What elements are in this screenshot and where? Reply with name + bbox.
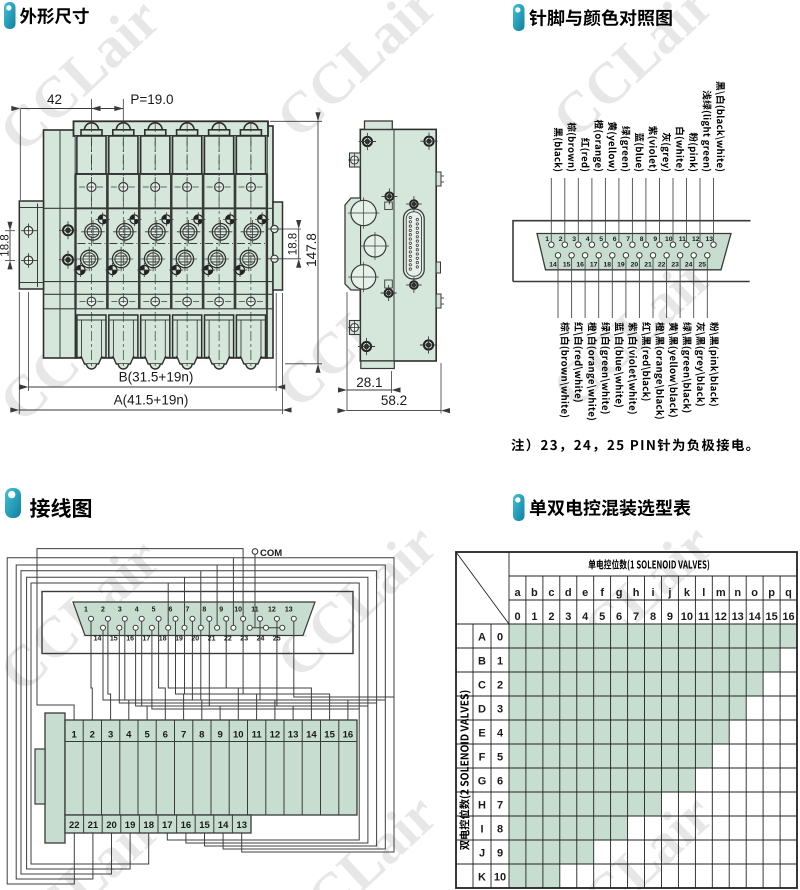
svg-text:e: e (582, 587, 588, 599)
svg-text:I: I (480, 824, 483, 836)
svg-text:9: 9 (219, 607, 223, 614)
svg-text:19: 19 (175, 636, 183, 643)
svg-text:14: 14 (306, 730, 317, 741)
svg-text:10: 10 (234, 607, 242, 614)
svg-text:A: A (478, 632, 486, 644)
svg-text:B: B (478, 656, 486, 668)
svg-text:a: a (514, 587, 521, 599)
svg-text:12: 12 (692, 236, 700, 243)
svg-text:24: 24 (685, 262, 693, 269)
svg-text:q: q (785, 587, 792, 599)
svg-text:8: 8 (199, 730, 204, 741)
svg-text:3: 3 (118, 607, 122, 614)
svg-text:18: 18 (159, 636, 167, 643)
svg-text:7: 7 (181, 730, 186, 741)
svg-text:147.8: 147.8 (304, 233, 319, 267)
svg-text:16: 16 (782, 611, 794, 623)
svg-text:13: 13 (236, 820, 247, 831)
svg-text:4: 4 (135, 607, 139, 614)
svg-text:3: 3 (108, 730, 113, 741)
svg-text:10: 10 (494, 872, 506, 884)
svg-text:17: 17 (590, 262, 598, 269)
svg-text:g: g (616, 587, 623, 599)
svg-text:16: 16 (576, 262, 584, 269)
svg-text:1: 1 (71, 730, 77, 741)
svg-text:11: 11 (679, 236, 686, 243)
svg-text:A(41.5+19n): A(41.5+19n) (114, 393, 189, 408)
svg-text:0: 0 (514, 611, 520, 623)
svg-text:9: 9 (497, 848, 503, 860)
svg-text:16: 16 (126, 636, 134, 643)
svg-text:2: 2 (559, 236, 563, 243)
svg-text:12: 12 (270, 730, 281, 741)
svg-text:21: 21 (644, 262, 652, 269)
svg-text:17: 17 (143, 636, 151, 643)
svg-text:j: j (667, 587, 671, 599)
svg-text:COM: COM (260, 548, 282, 559)
svg-text:5: 5 (599, 236, 603, 243)
svg-text:f: f (600, 587, 604, 599)
svg-text:5: 5 (599, 611, 605, 623)
svg-text:13: 13 (285, 607, 293, 614)
svg-text:8: 8 (202, 607, 206, 614)
svg-text:h: h (633, 587, 640, 599)
svg-text:19: 19 (617, 262, 625, 269)
svg-text:13: 13 (288, 730, 299, 741)
svg-text:14: 14 (218, 820, 229, 831)
svg-text:d: d (565, 587, 572, 599)
svg-text:2: 2 (90, 730, 95, 741)
svg-text:4: 4 (497, 728, 504, 740)
svg-text:7: 7 (633, 611, 639, 623)
svg-text:2: 2 (101, 607, 105, 614)
svg-text:8: 8 (640, 236, 644, 243)
svg-text:C: C (478, 680, 486, 692)
svg-text:23: 23 (240, 636, 248, 643)
svg-text:18: 18 (143, 820, 154, 831)
svg-text:6: 6 (613, 236, 617, 243)
svg-text:11: 11 (251, 607, 259, 614)
svg-text:7: 7 (497, 800, 503, 812)
svg-text:9: 9 (667, 611, 673, 623)
svg-text:16: 16 (181, 820, 192, 831)
svg-text:8: 8 (497, 824, 503, 836)
svg-text:11: 11 (252, 730, 263, 741)
svg-text:2: 2 (548, 611, 554, 623)
svg-text:0: 0 (497, 632, 503, 644)
svg-text:9: 9 (217, 730, 222, 741)
svg-text:16: 16 (343, 730, 354, 741)
svg-text:42: 42 (47, 92, 62, 107)
svg-text:m: m (716, 587, 726, 599)
svg-text:5: 5 (497, 752, 503, 764)
svg-text:P=19.0: P=19.0 (130, 92, 173, 107)
svg-text:6: 6 (497, 776, 503, 788)
svg-text:4: 4 (582, 611, 589, 623)
svg-text:21: 21 (88, 820, 99, 831)
svg-text:p: p (768, 587, 775, 599)
svg-text:5: 5 (152, 607, 156, 614)
svg-text:12: 12 (715, 611, 727, 623)
svg-text:22: 22 (658, 262, 666, 269)
svg-text:H: H (478, 800, 486, 812)
svg-text:F: F (479, 752, 486, 764)
svg-text:6: 6 (616, 611, 622, 623)
svg-text:J: J (479, 848, 485, 860)
svg-text:15: 15 (110, 636, 118, 643)
svg-text:13: 13 (706, 236, 714, 243)
svg-text:8: 8 (650, 611, 656, 623)
svg-text:c: c (548, 587, 554, 599)
svg-text:1: 1 (531, 611, 537, 623)
svg-text:19: 19 (125, 820, 136, 831)
svg-text:k: k (684, 587, 691, 599)
svg-text:n: n (734, 587, 741, 599)
svg-text:5: 5 (144, 730, 150, 741)
svg-text:b: b (531, 587, 538, 599)
svg-text:18.8: 18.8 (288, 233, 300, 255)
svg-text:K: K (478, 872, 486, 884)
svg-text:i: i (651, 587, 654, 599)
svg-text:20: 20 (191, 636, 199, 643)
svg-text:14: 14 (94, 636, 102, 643)
svg-text:10: 10 (665, 236, 673, 243)
svg-text:15: 15 (563, 262, 571, 269)
svg-text:11: 11 (698, 611, 710, 623)
svg-text:1: 1 (497, 656, 503, 668)
svg-text:2: 2 (497, 680, 503, 692)
svg-text:20: 20 (106, 820, 117, 831)
svg-text:13: 13 (732, 611, 744, 623)
svg-text:4: 4 (126, 730, 132, 741)
svg-text:17: 17 (162, 820, 173, 831)
svg-text:15: 15 (199, 820, 210, 831)
svg-text:28.1: 28.1 (356, 375, 382, 390)
svg-text:18: 18 (604, 262, 612, 269)
svg-text:1: 1 (545, 236, 549, 243)
svg-text:10: 10 (681, 611, 693, 623)
svg-text:6: 6 (163, 730, 168, 741)
svg-text:G: G (478, 776, 487, 788)
svg-text:23: 23 (671, 262, 679, 269)
svg-text:15: 15 (765, 611, 777, 623)
svg-text:12: 12 (268, 607, 276, 614)
svg-text:CCLair: CCLair (264, 511, 450, 690)
svg-text:25: 25 (699, 262, 707, 269)
svg-text:4: 4 (586, 236, 590, 243)
svg-text:9: 9 (653, 236, 657, 243)
svg-text:7: 7 (626, 236, 630, 243)
svg-text:E: E (478, 728, 485, 740)
svg-text:22: 22 (224, 636, 232, 643)
svg-text:3: 3 (572, 236, 576, 243)
svg-text:1: 1 (84, 607, 88, 614)
svg-text:10: 10 (233, 730, 244, 741)
svg-text:l: l (702, 587, 705, 599)
svg-text:7: 7 (185, 607, 189, 614)
svg-text:15: 15 (324, 730, 335, 741)
svg-text:3: 3 (565, 611, 571, 623)
svg-text:21: 21 (208, 636, 216, 643)
svg-text:3: 3 (497, 704, 503, 716)
svg-text:D: D (478, 704, 486, 716)
svg-text:B(31.5+19n): B(31.5+19n) (119, 370, 194, 385)
svg-text:o: o (751, 587, 758, 599)
svg-text:20: 20 (631, 262, 639, 269)
svg-text:25: 25 (273, 636, 281, 643)
svg-text:14: 14 (748, 611, 761, 623)
svg-text:14: 14 (549, 262, 557, 269)
svg-text:6: 6 (169, 607, 173, 614)
svg-text:24: 24 (257, 636, 265, 643)
svg-text:22: 22 (69, 820, 80, 831)
svg-text:58.2: 58.2 (381, 393, 407, 408)
svg-text:CCLair: CCLair (264, 0, 450, 151)
